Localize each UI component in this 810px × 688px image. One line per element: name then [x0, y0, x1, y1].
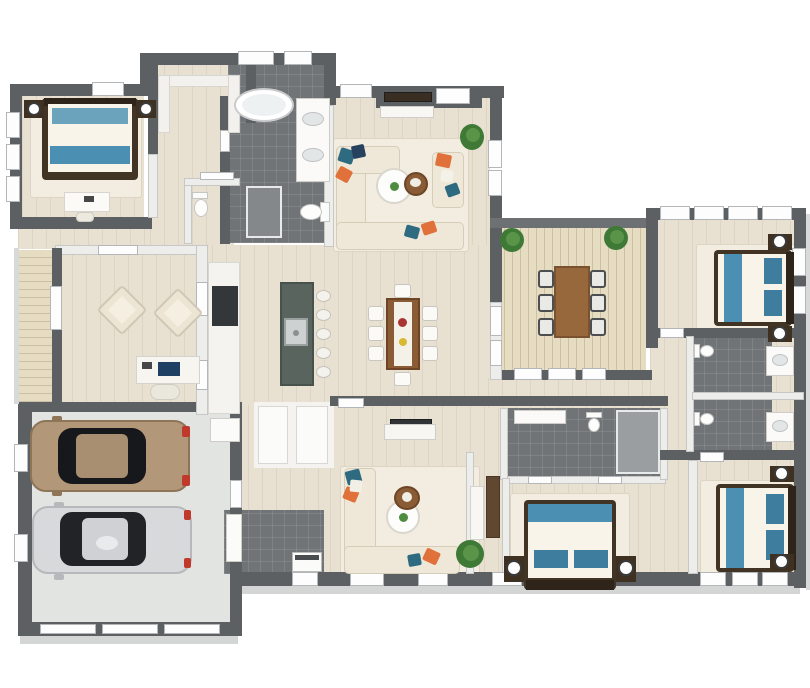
cooktop [212, 286, 238, 326]
window [418, 572, 448, 586]
window [238, 51, 274, 65]
fridge [210, 418, 240, 442]
bar-stool [316, 290, 331, 302]
closet-shelf [158, 75, 170, 133]
vanity-desk [64, 192, 110, 212]
sideboard [486, 476, 500, 538]
washer-lid [295, 555, 319, 560]
window [694, 206, 724, 220]
plant-leaf [610, 230, 624, 244]
deck-chair [538, 294, 554, 312]
shadow-right [806, 214, 810, 590]
kitchen-counter [208, 262, 240, 414]
bath-vanity [514, 410, 566, 424]
porch-rail [14, 248, 19, 404]
bar-stool [316, 347, 331, 359]
pillow [351, 144, 366, 159]
pillow [440, 169, 454, 183]
door-bedroom-br [700, 452, 724, 462]
garage-door-panel [102, 624, 158, 634]
lamp [27, 102, 41, 116]
sofa-section [336, 222, 464, 250]
door-garage [230, 480, 242, 508]
window [92, 82, 124, 96]
wall-deck-top [490, 218, 650, 228]
wall-bathmid-right [660, 408, 668, 480]
car-mirror [54, 574, 64, 580]
car-taillight [182, 475, 190, 486]
sofa-section [344, 546, 460, 574]
window [292, 572, 318, 586]
window [6, 144, 20, 170]
wall-bathmid-left [500, 408, 508, 480]
door-deck [582, 368, 606, 380]
floorplan-3d-render [0, 0, 810, 688]
bed-runner [724, 254, 742, 322]
toilet-bowl [300, 204, 322, 220]
window [488, 140, 502, 168]
door-deck [514, 368, 542, 380]
bath-sink [772, 354, 788, 366]
door-masterbath [220, 130, 230, 152]
desk-item [142, 362, 152, 369]
bed-pillows [764, 258, 782, 284]
window [762, 572, 788, 586]
deck-table [554, 266, 590, 338]
window [340, 84, 372, 98]
garage-door-panel [164, 624, 220, 634]
laundry-counter [226, 514, 242, 562]
bed-runner [50, 146, 130, 164]
pantry-shelf [296, 406, 328, 464]
wall-bathright-bottom [650, 450, 806, 460]
lamp [772, 234, 787, 249]
table-plant [390, 182, 399, 191]
car-mirror [54, 502, 64, 508]
toilet-bowl [700, 413, 714, 425]
office-chair [150, 384, 180, 400]
table-dish [410, 178, 421, 187]
bed-pillows [766, 494, 784, 524]
bar-stool [316, 309, 331, 321]
shadow-garage [20, 636, 238, 644]
lamp [772, 326, 787, 341]
dining-chair [368, 346, 384, 361]
window [792, 286, 806, 314]
window [792, 248, 806, 276]
flowers [398, 318, 407, 327]
bathtub-basin [242, 94, 286, 116]
plant-leaf [466, 128, 480, 142]
window [6, 112, 20, 138]
shower [616, 410, 660, 474]
shower [246, 186, 282, 238]
garage-door-panel [40, 624, 96, 634]
lamp [506, 560, 522, 576]
deck-chair [538, 318, 554, 336]
deck-chair [538, 270, 554, 288]
lamp [618, 560, 634, 576]
lamp [139, 102, 153, 116]
wall-wc-left [184, 178, 192, 244]
pillow [349, 479, 362, 492]
car-taillight [182, 426, 190, 437]
toilet-bowl [700, 345, 714, 357]
toilet-tank [192, 192, 208, 199]
bath-sink [302, 112, 324, 126]
deck-chair [590, 294, 606, 312]
dining-chair [368, 326, 384, 341]
tv-console [380, 106, 434, 118]
tv-console [384, 424, 436, 440]
table-runner [394, 302, 412, 366]
table-plant [399, 513, 408, 522]
bath-vanity [296, 98, 330, 182]
wall-family-top [330, 396, 668, 406]
wall-bedtl-top [10, 84, 150, 96]
car-taillight [184, 558, 191, 568]
window [700, 572, 726, 586]
hall-console [470, 486, 484, 540]
wall-bath-left-lower [220, 152, 230, 244]
car-shine [96, 536, 118, 550]
dining-chair [394, 284, 411, 298]
car-taillight [184, 510, 191, 520]
window [732, 572, 758, 586]
door-central-deck [490, 306, 502, 336]
window [728, 206, 758, 220]
pantry-shelf [258, 406, 288, 464]
door-bathmid [598, 476, 622, 484]
deck-chair [590, 318, 606, 336]
wall-bedbr-left [688, 460, 698, 574]
car-roof-tan [76, 434, 128, 478]
table-dish [402, 492, 412, 502]
window [6, 176, 20, 202]
bath-sink [772, 420, 788, 432]
door-living-top [436, 88, 470, 104]
door-deck [548, 368, 576, 380]
bed-headboard [526, 580, 614, 590]
dining-chair [394, 372, 411, 386]
bed-runner [528, 504, 612, 522]
car-mirror [52, 416, 62, 422]
deck-chair [590, 270, 606, 288]
wall-bedtl-hall-lower [148, 154, 158, 218]
desk-item [84, 196, 94, 202]
door-front [50, 286, 62, 330]
bed-pillows [764, 290, 782, 316]
door-bedroom-tr [660, 328, 684, 338]
window [488, 170, 502, 196]
tv-screen [384, 92, 432, 102]
bath-sink [302, 148, 324, 162]
car-mirror [52, 490, 62, 496]
bed-pillows [534, 550, 568, 568]
lamp [774, 466, 789, 481]
wall-living-right-upper [490, 86, 502, 140]
bed-headboard [786, 252, 794, 324]
laptop [158, 362, 180, 376]
bar-stool [316, 366, 331, 378]
pillow [435, 153, 452, 169]
plant-leaf [506, 232, 520, 246]
bowl [399, 338, 407, 346]
bar-stool [316, 328, 331, 340]
shadow-bottom [240, 586, 800, 594]
toilet-bowl [588, 418, 600, 432]
dining-chair [422, 346, 438, 361]
window [14, 534, 28, 562]
dining-chair [368, 306, 384, 321]
wall-bathright-divider [692, 392, 804, 400]
plant-leaf [463, 545, 479, 561]
dining-chair [422, 326, 438, 341]
lamp [774, 554, 789, 569]
bed-runner [726, 488, 744, 568]
desk-chair [76, 212, 94, 222]
pillow [407, 553, 422, 567]
bed-pillows [574, 550, 608, 568]
dining-chair [422, 306, 438, 321]
toilet-bowl [194, 199, 208, 217]
bed-pillows [52, 108, 128, 124]
window [660, 206, 690, 220]
window [14, 444, 28, 472]
window [284, 51, 312, 65]
door-central-deck [490, 340, 502, 366]
door-family [338, 398, 364, 408]
door-closet [200, 172, 234, 180]
window [762, 206, 792, 220]
window [350, 572, 384, 586]
faucet [293, 330, 299, 336]
door-office [98, 245, 138, 255]
door-bathmid [528, 476, 552, 484]
